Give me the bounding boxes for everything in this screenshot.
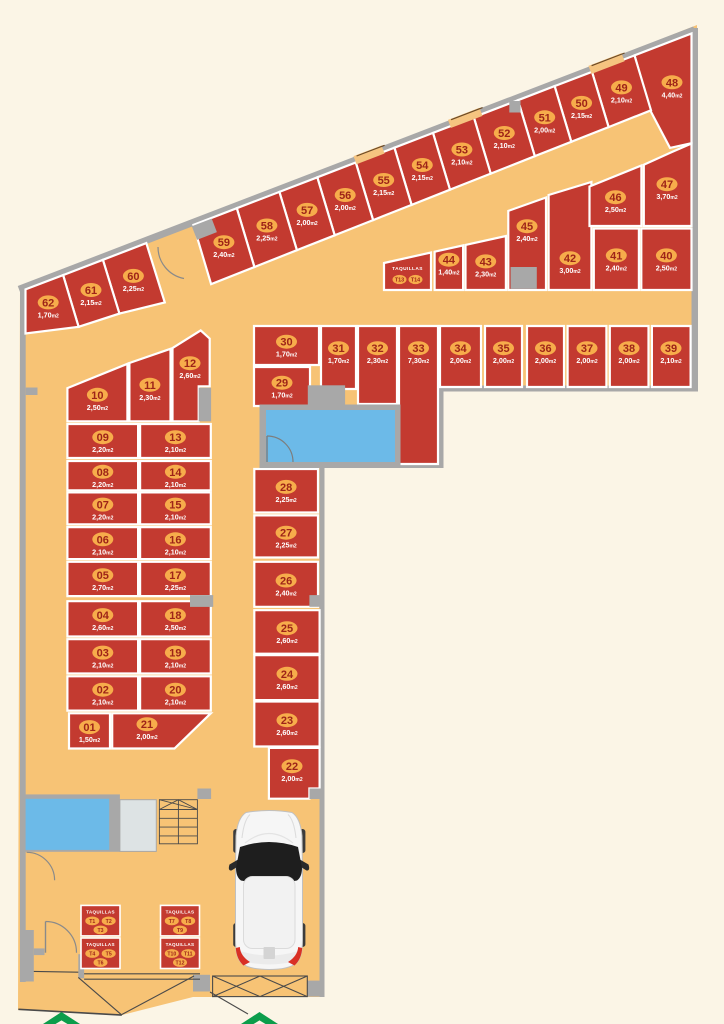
svg-text:41: 41 xyxy=(610,250,622,262)
svg-text:43: 43 xyxy=(480,256,492,268)
svg-text:09: 09 xyxy=(97,432,109,444)
svg-text:03: 03 xyxy=(97,648,109,660)
svg-text:55: 55 xyxy=(378,175,390,187)
svg-text:T7: T7 xyxy=(169,919,175,925)
svg-text:12: 12 xyxy=(184,358,196,370)
svg-text:48: 48 xyxy=(666,77,678,89)
svg-text:57: 57 xyxy=(301,205,313,217)
svg-text:TAQUILLAS: TAQUILLAS xyxy=(86,909,115,914)
svg-text:TAQUILLAS: TAQUILLAS xyxy=(166,942,195,947)
svg-text:38: 38 xyxy=(623,343,635,355)
svg-text:11: 11 xyxy=(144,380,156,392)
svg-text:4,40m2: 4,40m2 xyxy=(662,93,683,100)
svg-text:T6: T6 xyxy=(97,961,103,967)
svg-text:30: 30 xyxy=(280,337,292,349)
svg-text:58: 58 xyxy=(261,221,273,233)
svg-text:25: 25 xyxy=(281,623,293,635)
svg-text:47: 47 xyxy=(661,179,673,191)
svg-text:17: 17 xyxy=(169,570,181,582)
svg-text:49: 49 xyxy=(615,82,627,94)
svg-text:01: 01 xyxy=(83,722,95,734)
svg-text:56: 56 xyxy=(339,190,351,202)
svg-text:T4: T4 xyxy=(89,952,95,958)
svg-text:T10: T10 xyxy=(167,952,176,958)
svg-text:32: 32 xyxy=(371,343,383,355)
svg-text:50: 50 xyxy=(575,98,587,110)
svg-text:15: 15 xyxy=(169,500,181,512)
svg-text:T11: T11 xyxy=(184,952,193,958)
svg-text:62: 62 xyxy=(42,297,54,309)
svg-text:59: 59 xyxy=(218,237,230,249)
svg-text:02: 02 xyxy=(97,685,109,697)
svg-text:46: 46 xyxy=(609,192,621,204)
svg-text:18: 18 xyxy=(169,610,181,622)
svg-text:T2: T2 xyxy=(106,919,112,925)
svg-text:51: 51 xyxy=(539,112,551,124)
svg-text:26: 26 xyxy=(280,576,292,588)
svg-text:T5: T5 xyxy=(106,952,112,958)
svg-text:45: 45 xyxy=(521,221,533,233)
svg-text:T3: T3 xyxy=(97,928,103,934)
svg-text:60: 60 xyxy=(127,271,139,283)
svg-text:21: 21 xyxy=(141,719,153,731)
svg-text:TAQUILLAS: TAQUILLAS xyxy=(86,942,115,947)
svg-text:35: 35 xyxy=(497,343,509,355)
svg-text:29: 29 xyxy=(276,378,288,390)
svg-text:27: 27 xyxy=(280,528,292,540)
svg-text:20: 20 xyxy=(169,685,181,697)
svg-text:19: 19 xyxy=(169,648,181,660)
svg-text:T12: T12 xyxy=(176,961,185,967)
svg-text:36: 36 xyxy=(539,343,551,355)
svg-text:T8: T8 xyxy=(185,919,191,925)
svg-text:23: 23 xyxy=(281,715,293,727)
svg-text:T9: T9 xyxy=(177,928,183,934)
svg-text:T14: T14 xyxy=(411,278,420,284)
svg-text:13: 13 xyxy=(169,432,181,444)
svg-text:53: 53 xyxy=(456,145,468,157)
svg-text:54: 54 xyxy=(416,160,429,172)
svg-text:42: 42 xyxy=(564,253,576,265)
svg-text:08: 08 xyxy=(97,467,109,479)
svg-text:28: 28 xyxy=(280,482,292,494)
svg-text:16: 16 xyxy=(169,534,181,546)
svg-text:52: 52 xyxy=(498,128,510,140)
svg-text:44: 44 xyxy=(443,255,456,267)
svg-text:37: 37 xyxy=(581,343,593,355)
svg-text:07: 07 xyxy=(97,500,109,512)
svg-text:34: 34 xyxy=(454,343,467,355)
svg-text:T13: T13 xyxy=(395,278,404,284)
svg-text:10: 10 xyxy=(91,390,103,402)
svg-text:24: 24 xyxy=(281,669,294,681)
svg-text:22: 22 xyxy=(286,761,298,773)
svg-text:40: 40 xyxy=(660,250,672,262)
svg-text:TAQUILLAS: TAQUILLAS xyxy=(166,909,195,914)
svg-text:14: 14 xyxy=(169,467,182,479)
svg-text:33: 33 xyxy=(412,343,424,355)
svg-text:39: 39 xyxy=(665,343,677,355)
svg-text:31: 31 xyxy=(332,343,344,355)
svg-text:06: 06 xyxy=(97,534,109,546)
svg-text:05: 05 xyxy=(97,570,109,582)
svg-text:TAQUILLAS: TAQUILLAS xyxy=(392,266,423,272)
svg-text:04: 04 xyxy=(97,610,110,622)
svg-text:T1: T1 xyxy=(89,919,95,925)
svg-text:61: 61 xyxy=(85,285,97,297)
